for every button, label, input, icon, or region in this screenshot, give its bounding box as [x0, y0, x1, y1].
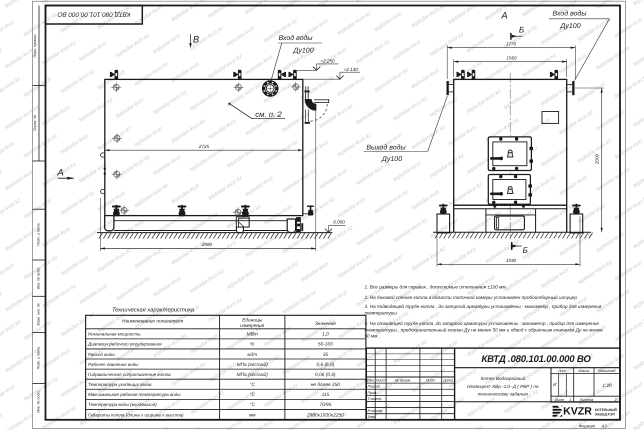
svg-text:Дата: Дата: [442, 379, 453, 383]
svg-text:А3: А3: [600, 423, 607, 428]
svg-text:А: А: [56, 166, 63, 177]
svg-text:+2.250: +2.250: [321, 59, 336, 64]
svg-text:КВТД.080.101.00.000 ВО: КВТД.080.101.00.000 ВО: [58, 11, 131, 18]
svg-text:Наименование показателя: Наименование показателя: [122, 319, 184, 325]
svg-text:№ докум.: № докум.: [395, 379, 411, 383]
svg-text:Техническая характеристика: Техническая характеристика: [112, 308, 195, 314]
svg-text:0,06 (0,6): 0,06 (0,6): [315, 372, 336, 378]
svg-text:Взам. инв. №: Взам. инв. №: [36, 303, 40, 325]
svg-text:Б: Б: [523, 246, 529, 255]
svg-text:ЗАВОД РЭП: ЗАВОД РЭП: [595, 413, 616, 417]
svg-text:Диапазон рабочего регулировани: Диапазон рабочего регулирования: [87, 342, 162, 347]
svg-text:KVZR: KVZR: [563, 406, 592, 418]
svg-text:Максимальная рабочая температу: Максимальная рабочая температура воды: [88, 392, 181, 397]
svg-text:мм: мм: [249, 413, 256, 418]
svg-text:1770: 1770: [506, 41, 517, 46]
svg-text:%: %: [250, 342, 255, 348]
svg-text:Формат: Формат: [579, 423, 596, 428]
svg-text:+2.130: +2.130: [344, 67, 359, 72]
svg-text:КВТД .080.101.00.000 ВО: КВТД .080.101.00.000 ВО: [481, 354, 591, 365]
svg-text:3. На подводящей трубе котла: 3. На подводящей трубе котла , до запорн…: [365, 304, 602, 309]
svg-text:В: В: [193, 34, 199, 45]
svg-text:Разраб.: Разраб.: [368, 385, 381, 389]
svg-text:70/95: 70/95: [319, 402, 331, 408]
svg-text:А: А: [500, 9, 507, 20]
svg-text:2000: 2000: [595, 153, 600, 165]
svg-text:2. На боковой стенке котла в: 2. На боковой стенке котла в области топ…: [364, 295, 578, 300]
svg-text:1: 1: [569, 398, 571, 402]
svg-text:не более 250: не более 250: [311, 382, 341, 388]
svg-text:Температура уходящих газов: Температура уходящих газов: [88, 382, 152, 387]
svg-text:техническому заданию: техническому заданию: [478, 392, 529, 397]
svg-text:измерения: измерения: [240, 324, 264, 329]
svg-text:2980: 2980: [201, 242, 213, 247]
svg-text:Единицы: Единицы: [242, 318, 263, 324]
svg-text:Подп. и дата: Подп. и дата: [36, 347, 40, 370]
svg-text:Ду100: Ду100: [292, 47, 313, 54]
svg-text:Heatexpert- КВр -1,0- Д ( РВР: Heatexpert- КВр -1,0- Д ( РВР ) по: [467, 384, 539, 389]
svg-text:температуры .: температуры .: [365, 310, 400, 315]
svg-text:2725: 2725: [198, 144, 210, 149]
svg-text:Лист: Лист: [375, 379, 386, 383]
svg-text:Вход воды: Вход воды: [279, 34, 314, 42]
svg-text:Изм.: Изм.: [367, 379, 375, 383]
svg-text:50-100: 50-100: [318, 342, 333, 348]
svg-text:м3/ч: м3/ч: [247, 352, 257, 358]
svg-text:1. Все размеры для справок ,: 1. Все размеры для справок , допустимые …: [365, 284, 509, 289]
svg-text:КОТЕЛЬНЫЙ: КОТЕЛЬНЫЙ: [595, 407, 618, 412]
svg-text:Н.контр.: Н.контр.: [368, 409, 384, 413]
svg-text:4. На отводящей трубе котла ,: 4. На отводящей трубе котла ,до запорной…: [365, 321, 600, 326]
svg-text:2980х1930х2250: 2980х1930х2250: [306, 412, 344, 418]
svg-text:МПа (кгс/см2): МПа (кгс/см2): [237, 372, 269, 378]
svg-text:1,0: 1,0: [322, 332, 329, 338]
svg-text:°С: °С: [250, 402, 256, 408]
svg-text:°С: °С: [250, 392, 256, 398]
svg-text:Масса: Масса: [578, 369, 589, 373]
svg-text:МПа (кгс/см2): МПа (кгс/см2): [237, 362, 269, 368]
svg-text:Пров.: Пров.: [368, 391, 378, 395]
svg-text:Масштаб: Масштаб: [598, 369, 616, 373]
svg-text:2: 2: [613, 398, 616, 402]
svg-text:Перв. примен.: Перв. примен.: [33, 34, 37, 58]
svg-text:Б: Б: [519, 25, 525, 34]
svg-text:1:20: 1:20: [602, 383, 612, 389]
svg-text:Температура воды (вход/выход): Температура воды (вход/выход): [88, 402, 157, 407]
svg-text:Расход воды: Расход воды: [88, 352, 115, 357]
svg-text:Котел Водогрейный: Котел Водогрейный: [481, 376, 526, 381]
svg-text:Гидравлическое сопротивление к: Гидравлическое сопротивление котла: [88, 372, 171, 377]
svg-text:Подп.: Подп.: [426, 379, 436, 383]
svg-text:Ду100: Ду100: [381, 156, 402, 163]
svg-text:35: 35: [323, 352, 329, 358]
svg-text:МВт: МВт: [247, 332, 258, 338]
svg-text:1560: 1560: [506, 55, 517, 60]
svg-text:1930: 1930: [506, 258, 517, 263]
svg-text:Рабочее давление воды: Рабочее давление воды: [88, 362, 139, 367]
svg-text:Т.контр.: Т.контр.: [368, 397, 383, 401]
svg-text:Инв. № подл.: Инв. № подл.: [36, 390, 40, 412]
svg-text:Вход воды: Вход воды: [553, 10, 588, 18]
svg-text:Ду100: Ду100: [559, 23, 580, 30]
svg-text:Подп. и дата: Подп. и дата: [36, 223, 40, 246]
svg-text:0.000: 0.000: [333, 220, 345, 225]
svg-text:°С: °С: [250, 382, 256, 388]
svg-text:Значение: Значение: [315, 321, 336, 327]
svg-text:Листов: Листов: [579, 398, 594, 402]
svg-text:см. п. 2: см. п. 2: [255, 110, 282, 119]
svg-text:Номинальная мощность: Номинальная мощность: [88, 332, 141, 337]
svg-text:0,6 (6,0): 0,6 (6,0): [316, 362, 334, 368]
svg-text:Утв.: Утв.: [368, 415, 376, 419]
svg-text:Справ. №: Справ. №: [33, 115, 37, 131]
svg-text:Лист: Лист: [554, 398, 565, 402]
svg-text:115: 115: [322, 392, 330, 398]
svg-text:Лит.: Лит.: [557, 369, 567, 373]
svg-text:Габариты котла (длина х ширина: Габариты котла (длина х ширина х высота): [88, 412, 184, 417]
svg-text:температуры , предохранительны: температуры , предохранительный клапан Д…: [365, 327, 604, 332]
svg-text:50 мм .: 50 мм .: [365, 334, 381, 339]
svg-text:Выход воды: Выход воды: [366, 143, 406, 151]
svg-text:Инв. № дубл.: Инв. № дубл.: [36, 267, 40, 289]
